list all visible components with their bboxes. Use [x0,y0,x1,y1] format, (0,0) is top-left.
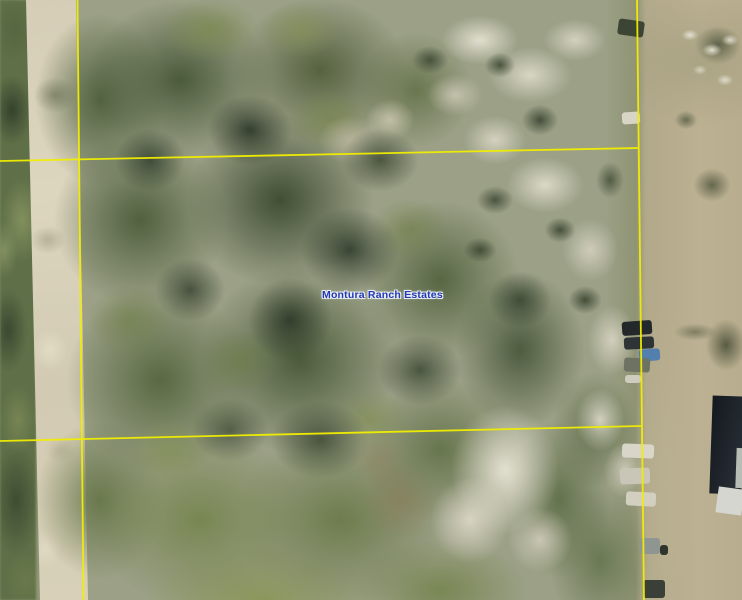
parcel-line-vertical-left [78,0,84,600]
parcel-line-horizontal-upper [0,148,638,161]
parcel-line-horizontal-lower [0,426,641,441]
parcel-line-vertical-right [637,0,644,600]
place-label: Montura Ranch Estates [322,289,443,301]
aerial-map-view[interactable]: Montura Ranch Estates [0,0,742,600]
